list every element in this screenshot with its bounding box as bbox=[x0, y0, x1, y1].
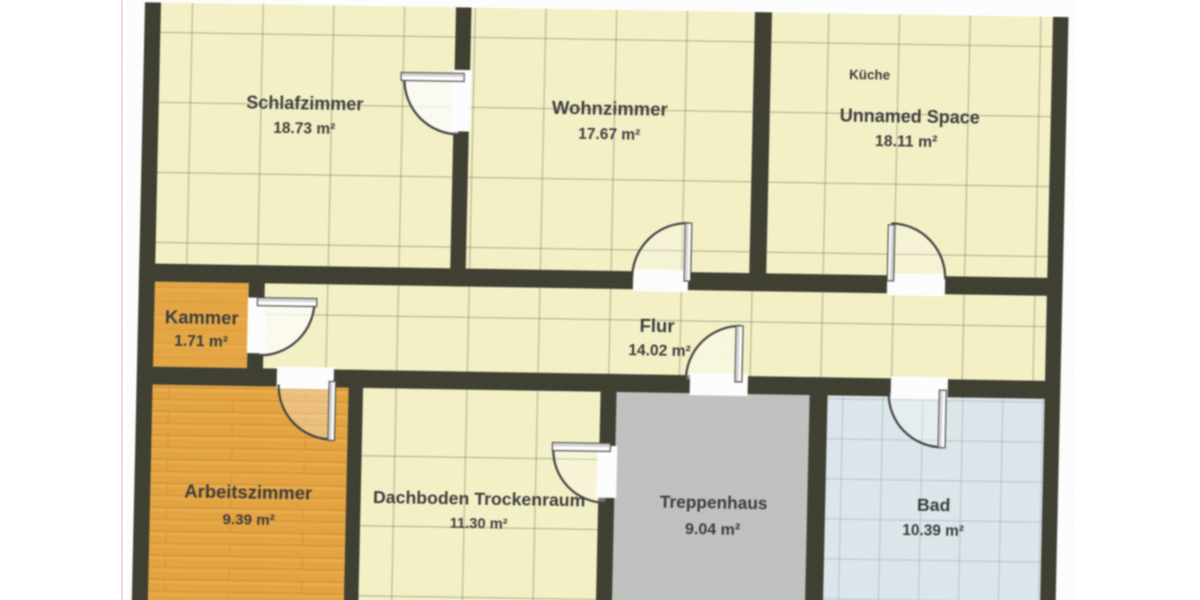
svg-text:Schlafzimmer: Schlafzimmer bbox=[246, 92, 363, 114]
svg-text:10.39 m²: 10.39 m² bbox=[902, 522, 964, 540]
svg-text:Arbeitszimmer: Arbeitszimmer bbox=[184, 481, 312, 504]
svg-text:Wohnzimmer: Wohnzimmer bbox=[552, 97, 668, 120]
svg-text:11.30 m²: 11.30 m² bbox=[449, 516, 507, 533]
svg-text:Kammer: Kammer bbox=[165, 306, 239, 328]
svg-text:Küche: Küche bbox=[849, 67, 890, 83]
svg-text:14.02 m²: 14.02 m² bbox=[628, 342, 691, 360]
svg-text:Flur: Flur bbox=[639, 315, 674, 337]
svg-text:Bad: Bad bbox=[917, 495, 951, 516]
svg-text:Treppenhaus: Treppenhaus bbox=[660, 492, 768, 514]
svg-text:17.67 m²: 17.67 m² bbox=[578, 126, 640, 144]
svg-text:Dachboden Trockenraum: Dachboden Trockenraum bbox=[373, 487, 586, 510]
svg-text:Unnamed Space: Unnamed Space bbox=[840, 105, 980, 127]
svg-text:9.39 m²: 9.39 m² bbox=[222, 511, 275, 529]
svg-text:1.71 m²: 1.71 m² bbox=[174, 333, 228, 351]
svg-text:18.73 m²: 18.73 m² bbox=[273, 120, 335, 138]
svg-text:18.11 m²: 18.11 m² bbox=[875, 133, 938, 151]
svg-text:9.04 m²: 9.04 m² bbox=[685, 521, 741, 539]
